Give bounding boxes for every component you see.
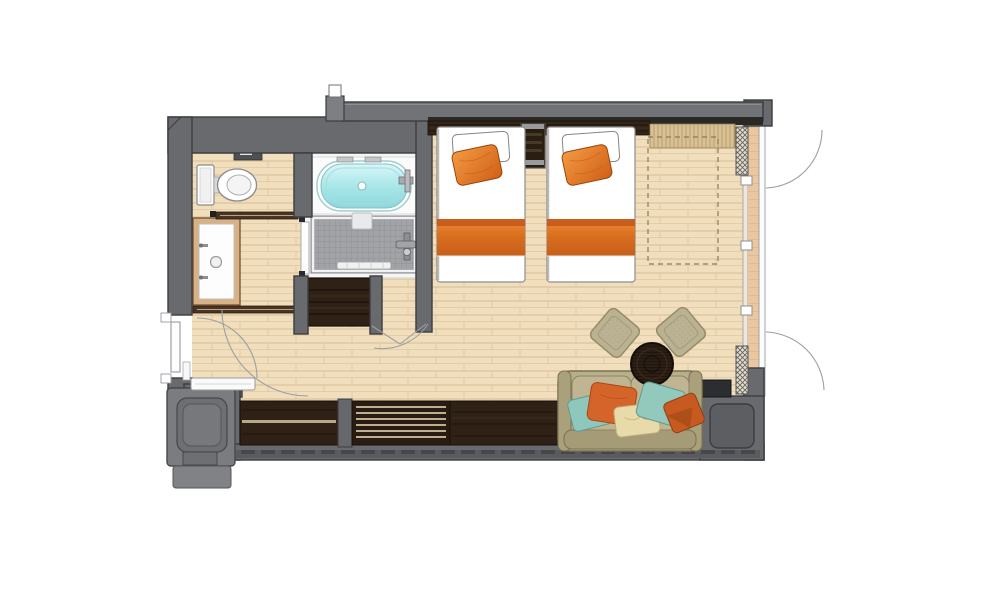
twin-bed-2 bbox=[547, 127, 635, 282]
window-handle bbox=[741, 241, 752, 250]
entry-door-frame bbox=[161, 374, 171, 383]
floor-plan bbox=[0, 0, 1000, 600]
wall-left-upper bbox=[168, 117, 192, 315]
tv-block bbox=[701, 380, 731, 397]
service-duct bbox=[167, 388, 235, 488]
entry-door bbox=[171, 322, 180, 372]
cabinet-divider bbox=[338, 399, 352, 447]
floor-plan-canvas bbox=[0, 0, 1000, 600]
tub-fixture bbox=[365, 157, 381, 162]
entry-door-frame bbox=[161, 313, 171, 322]
window-handle bbox=[741, 306, 752, 315]
window-handle bbox=[741, 176, 752, 185]
shower-glass-door bbox=[301, 222, 309, 274]
ac-unit-panel bbox=[710, 404, 754, 448]
vanity bbox=[193, 218, 240, 305]
tub-drain bbox=[358, 182, 366, 190]
cabinet-right bbox=[450, 401, 558, 445]
closet bbox=[308, 278, 370, 326]
roof-step bbox=[326, 96, 344, 121]
window-bench bbox=[650, 124, 735, 148]
shower-shelf bbox=[352, 213, 372, 229]
twin-bed-1 bbox=[437, 127, 525, 282]
tub-fixture bbox=[337, 157, 353, 162]
coffee-table bbox=[631, 343, 673, 385]
terrace-glass-rail bbox=[759, 124, 765, 396]
vanity-sink bbox=[211, 257, 222, 268]
wall-closet-right bbox=[370, 276, 382, 334]
wall-top-left bbox=[168, 117, 430, 153]
entry-side-shelf bbox=[183, 362, 190, 380]
vent-pipe bbox=[329, 85, 341, 97]
wall-bathroom-right bbox=[416, 119, 432, 332]
wall-toilet-divider bbox=[294, 153, 312, 217]
bathroom bbox=[299, 153, 426, 278]
toilet bbox=[197, 165, 257, 205]
wall-closet-left bbox=[294, 276, 308, 334]
